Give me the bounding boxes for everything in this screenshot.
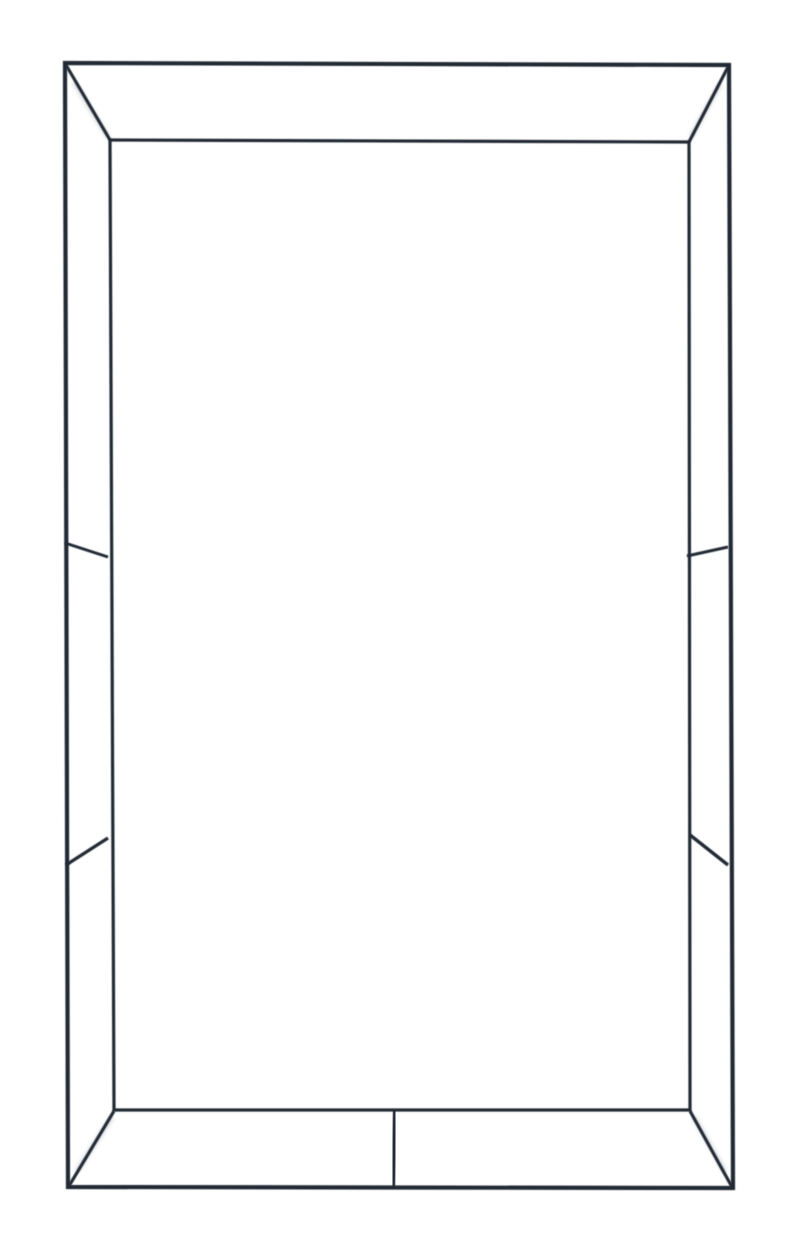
divider-left-upper [65,543,108,557]
outer-frame-edge [65,63,733,1188]
divider-right-upper [687,547,728,556]
miter-joint-bottom-left [69,1111,114,1186]
product-photo-canvas [0,0,800,1257]
miter-joint-bottom-right [690,1111,732,1187]
miter-joint-top-left [66,65,110,140]
divider-right-lower [690,835,728,865]
divider-bottom-center [393,1110,395,1188]
miter-shadows [74,82,725,1172]
divider-left-lower [66,838,108,865]
frame-drawing [0,0,800,1257]
frame-strokes [65,63,733,1188]
miter-joint-top-right [689,67,728,142]
inner-frame-edge [110,140,690,1110]
